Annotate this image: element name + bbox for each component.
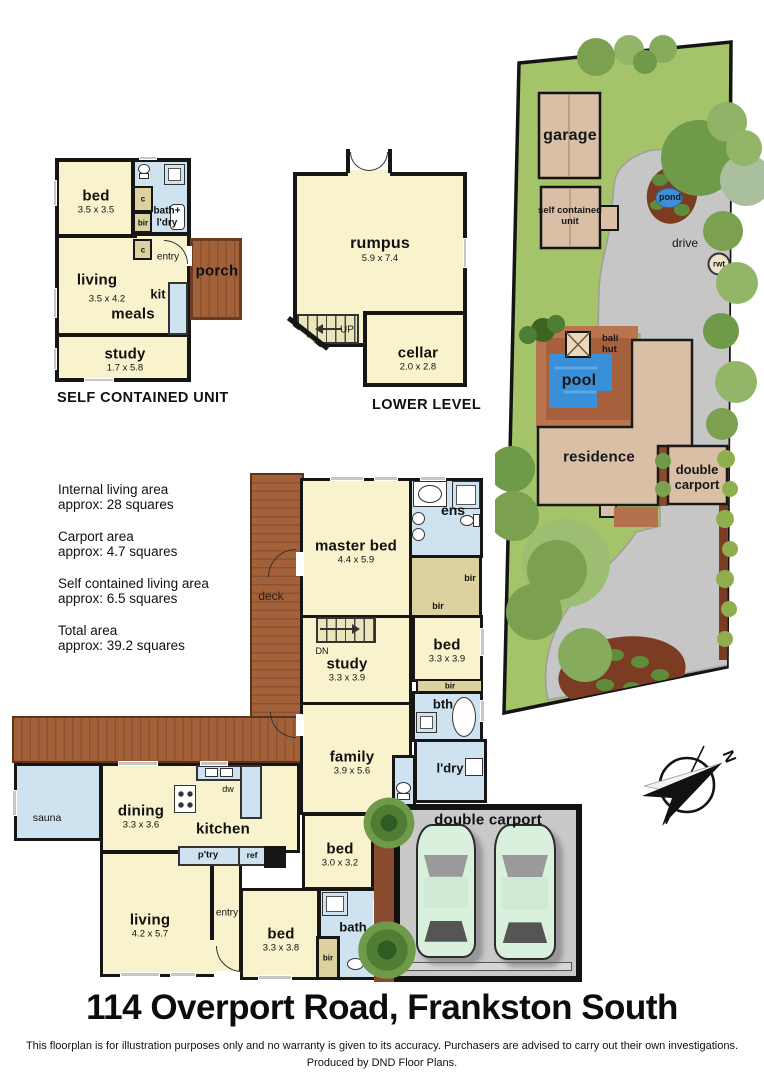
window-marker: [53, 288, 57, 318]
unit-study-label: study 1.7 x 5.8: [104, 345, 145, 374]
site-pool-label: pool: [562, 372, 597, 390]
main-carport-label: double carport: [434, 811, 542, 828]
window-marker: [120, 972, 160, 977]
site-residence-label: residence: [563, 449, 635, 466]
rumpus-label: rumpus 5.9 x 7.4: [350, 235, 410, 265]
bed2-label: bed 3.0 x 3.2: [322, 840, 358, 869]
window-marker: [463, 238, 467, 268]
unit-closet1-label: c: [141, 194, 145, 203]
site-pond-label: pond: [659, 192, 681, 202]
kitchen-label: kitchen: [196, 820, 250, 837]
window-marker: [53, 180, 57, 206]
vanity-basin-icon: [412, 528, 425, 541]
disclaimer-line2: Produced by DND Floor Plans.: [0, 1057, 764, 1069]
living-entry-wall: [210, 866, 214, 940]
up-label: UP: [340, 324, 354, 336]
main-stairs: [316, 617, 376, 643]
window-marker: [480, 628, 485, 656]
window-marker: [170, 972, 196, 977]
area-label: Internal living area: [58, 482, 278, 497]
window-marker: [374, 476, 398, 481]
unit-entry-label: entry: [157, 251, 179, 263]
unit-shower-icon: [164, 164, 185, 185]
shower-icon: [322, 892, 348, 916]
wir-bir-label: bir: [464, 573, 476, 583]
bed1-label: bed 3.3 x 3.9: [429, 636, 465, 665]
laundry-label: l'dry: [437, 762, 464, 777]
fridge-label: ref: [247, 851, 258, 861]
window-marker: [480, 700, 485, 722]
lower-caption: LOWER LEVEL: [372, 397, 481, 413]
shower-icon: [416, 712, 437, 733]
sauna-label: sauna: [33, 812, 62, 824]
area-value: approx: 6.5 squares: [58, 591, 278, 606]
pantry-label: p'try: [198, 851, 218, 862]
unit-kit-label: kit: [150, 288, 165, 303]
deck-label: deck: [258, 590, 283, 604]
car: [494, 824, 556, 960]
area-value: approx: 28 squares: [58, 497, 278, 512]
area-label: Total area: [58, 623, 278, 638]
site-carport-label: doublecarport: [675, 462, 720, 492]
family-deck-door-gap: [296, 714, 304, 736]
bathtub-icon: [452, 697, 476, 737]
vanity-basin-icon: [412, 512, 425, 525]
kitchen-bench-right: [240, 765, 262, 819]
area-value: approx: 39.2 squares: [58, 638, 278, 653]
ens-label: ens: [441, 502, 465, 518]
palm-plant: [358, 918, 416, 982]
window-marker: [330, 476, 364, 481]
deck-horizontal: [12, 716, 304, 763]
area-label: Self contained living area: [58, 576, 278, 591]
car-rear-window: [501, 922, 549, 943]
study-label: study 3.3 x 3.9: [326, 655, 367, 684]
site-unit-label: self containedunit: [538, 205, 602, 227]
window-marker: [53, 348, 57, 370]
unit-wall-bed-bottom: [57, 234, 137, 238]
window-marker: [84, 378, 114, 382]
sink-icon: [220, 768, 233, 777]
window-marker: [118, 761, 158, 766]
area-label: Carport area: [58, 529, 278, 544]
car-rear-window: [423, 921, 469, 942]
unit-toilet-tank: [139, 173, 149, 179]
bed3-label: bed 3.3 x 3.8: [263, 925, 299, 954]
sink-icon: [205, 768, 218, 777]
unit-living-dims: 3.5 x 4.2: [89, 295, 125, 306]
kitchen-black-block: [264, 846, 286, 868]
palm-plant: [362, 796, 416, 850]
dw-label: dw: [222, 784, 234, 794]
master-deck-door-gap: [296, 552, 304, 576]
unit-living-label: living: [77, 271, 117, 288]
window-marker: [420, 476, 446, 481]
bed3-bir-label: bir: [323, 953, 333, 962]
bed1-bir-label: bir: [445, 681, 455, 690]
cellar-label: cellar 2.0 x 2.8: [398, 344, 438, 373]
window-marker: [139, 156, 157, 160]
family-label: family 3.9 x 5.6: [330, 748, 375, 777]
stove-icon: [174, 785, 196, 813]
car-roof: [424, 877, 469, 908]
window-marker: [12, 790, 17, 816]
spa-oval: [418, 485, 442, 503]
disclaimer-line1: This floorplan is for illustration purpo…: [0, 1040, 764, 1052]
walkin-robe: [409, 555, 482, 618]
car-windshield: [500, 855, 550, 877]
entry-label: entry: [216, 907, 238, 919]
window-marker: [258, 975, 292, 980]
compass-icon: [638, 736, 738, 831]
sauna-room: [14, 763, 102, 841]
dining-label: dining 3.3 x 3.6: [118, 802, 164, 831]
entry-door-gap: [214, 971, 240, 979]
unit-bath-label: bath+ l'dry: [154, 206, 181, 229]
lower-door-stub-right: [388, 149, 392, 173]
bth-label: bth: [433, 698, 453, 713]
site-drive-label: drive: [672, 236, 698, 250]
area-summary: Internal living area approx: 28 squares …: [58, 482, 278, 653]
site-garage-label: garage: [543, 127, 597, 145]
carport-beam: [404, 962, 572, 971]
page-title: 114 Overport Road, Frankston South: [0, 988, 764, 1028]
area-value: approx: 4.7 squares: [58, 544, 278, 559]
unit-caption: SELF CONTAINED UNIT: [57, 390, 229, 406]
car: [416, 824, 476, 958]
unit-bir-label: bir: [138, 218, 148, 227]
unit-porch-label: porch: [196, 262, 239, 279]
site-plan-graphic: [495, 35, 764, 725]
master-bir-label: bir: [432, 601, 444, 611]
unit-closet2-label: c: [141, 245, 145, 254]
car-windshield: [422, 855, 470, 877]
unit-kitchen-bench: [168, 282, 188, 335]
living-label: living 4.2 x 5.7: [130, 911, 170, 940]
toilet-tank: [473, 514, 480, 527]
window-marker: [200, 761, 228, 766]
floorplan-page: bed 3.5 x 3.5 bath+ l'dry c bir c entry …: [0, 0, 764, 1080]
stairs-arrow-up: [322, 328, 342, 330]
master-bed-label: master bed 4.4 x 5.9: [315, 537, 397, 566]
unit-meals-label: meals: [111, 305, 155, 322]
stairs-arrowhead-up: [315, 324, 323, 334]
unit-bed-label: bed 3.5 x 3.5: [78, 187, 114, 216]
car-roof: [502, 877, 548, 909]
stairs-arrowhead: [352, 624, 360, 634]
site-rwt-label: rwt: [713, 260, 725, 269]
stairs-arrow: [320, 628, 354, 630]
washer-icon: [465, 758, 483, 776]
site-bali-hut-label: balihut: [602, 333, 618, 355]
